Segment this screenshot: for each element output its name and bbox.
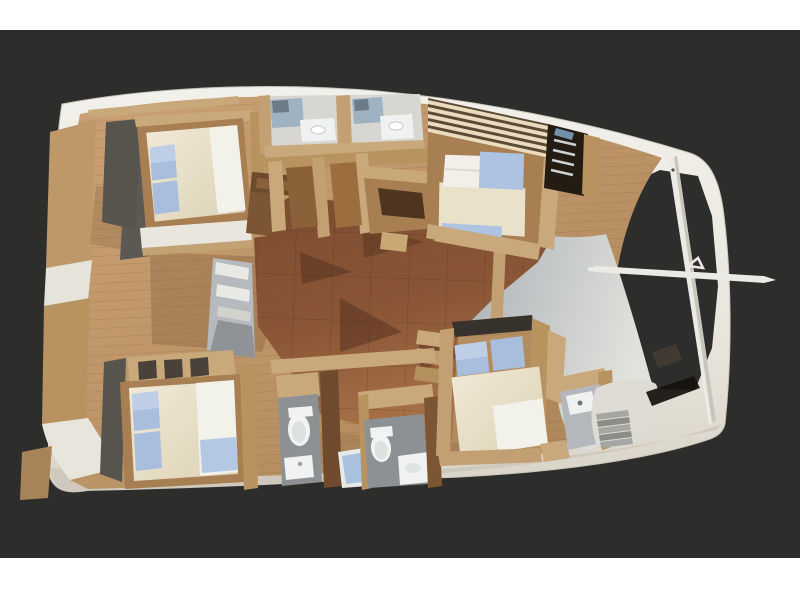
mirror (354, 99, 369, 111)
bow-stairs (596, 410, 633, 448)
double-bed (120, 374, 245, 489)
pillow (152, 180, 180, 214)
blanket (475, 148, 528, 194)
double-bed (137, 118, 252, 230)
saloon-entry-stairs (207, 258, 255, 358)
sink-counter (284, 455, 314, 480)
sink-basin (389, 122, 403, 130)
catamaran (20, 87, 776, 500)
mirror (272, 100, 289, 113)
pillow (490, 336, 525, 371)
screenshot-root (0, 0, 800, 600)
sink-basin (311, 126, 325, 134)
pillow (134, 431, 162, 471)
blanket (492, 398, 548, 452)
cabin-floor-shadow (102, 119, 140, 230)
yacht-layout-render (0, 0, 800, 600)
